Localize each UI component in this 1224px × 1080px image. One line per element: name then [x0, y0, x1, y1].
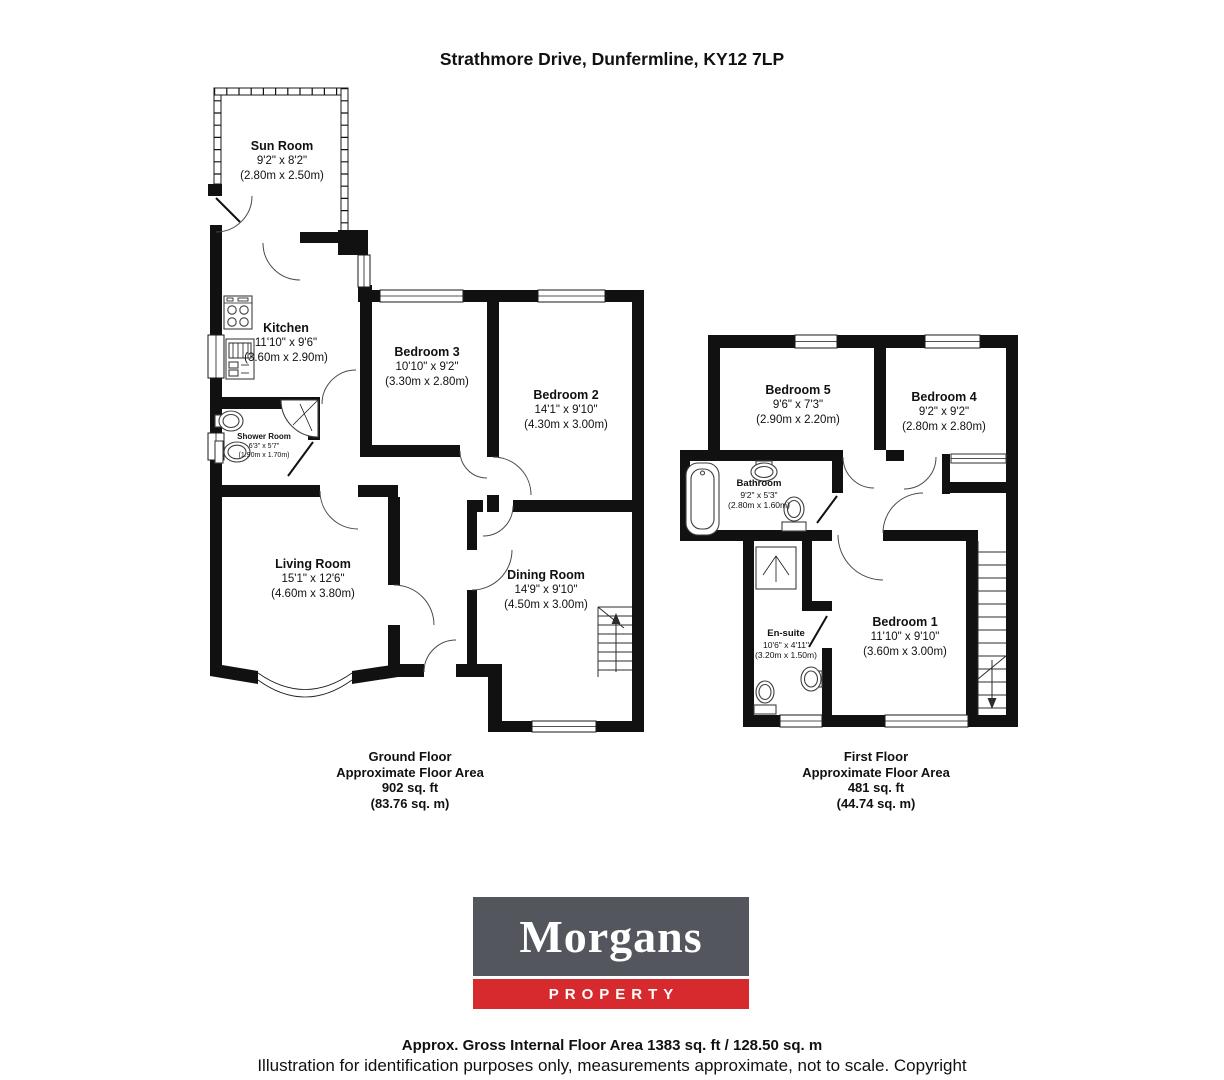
room-label-bedroom-3: Bedroom 3 10'10" x 9'2" (3.30m x 2.80m): [385, 345, 469, 389]
closet-icon: [951, 454, 1006, 463]
morgans-logo-brand: Morgans: [519, 910, 702, 963]
morgans-logo-tagline-bar: PROPERTY: [473, 979, 749, 1009]
stairs-up-icon: [598, 607, 632, 677]
morgans-logo: Morgans: [473, 897, 749, 976]
room-label-bedroom-2: Bedroom 2 14'1" x 9'10" (4.30m x 3.00m): [524, 388, 608, 432]
ensuite-sink-icon: [801, 667, 822, 691]
gross-area-text: Approx. Gross Internal Floor Area 1383 s…: [402, 1037, 822, 1054]
room-label-bedroom-1: Bedroom 1 11'10" x 9'10" (3.60m x 3.00m): [863, 615, 947, 659]
ensuite-toilet-icon: [754, 681, 776, 714]
room-label-dining-room: Dining Room 14'9" x 9'10" (4.50m x 3.00m…: [504, 568, 588, 612]
ground-floor-caption: Ground Floor Approximate Floor Area 902 …: [336, 749, 484, 811]
room-label-bathroom: Bathroom 9'2" x 5'3" (2.80m x 1.60m): [728, 478, 790, 511]
bath-icon: [686, 463, 719, 535]
stairs-down-icon: [978, 541, 1006, 715]
room-label-bedroom-5: Bedroom 5 9'6" x 7'3" (2.90m x 2.20m): [756, 383, 840, 427]
room-label-bedroom-4: Bedroom 4 9'2" x 9'2" (2.80m x 2.80m): [902, 390, 986, 434]
morgans-logo-tagline: PROPERTY: [543, 986, 680, 1003]
room-label-kitchen: Kitchen 11'10" x 9'6" (3.60m x 2.90m): [244, 321, 328, 365]
page-title: Strathmore Drive, Dunfermline, KY12 7LP: [440, 49, 784, 71]
room-label-sun-room: Sun Room 9'2" x 8'2" (2.80m x 2.50m): [240, 139, 324, 183]
room-label-en-suite: En-suite 10'6" x 4'11" (3.20m x 1.50m): [755, 628, 817, 661]
bay-window: [258, 673, 352, 697]
room-label-shower-room: Shower Room 6'3" x 5'7" (1.90m x 1.70m): [237, 432, 291, 460]
floorplan-page: Strathmore Drive, Dunfermline, KY12 7LP: [0, 0, 1224, 1080]
ensuite-shower-icon: [756, 547, 796, 589]
first-floor-caption: First Floor Approximate Floor Area 481 s…: [802, 749, 950, 811]
room-label-living-room: Living Room 15'1" x 12'6" (4.60m x 3.80m…: [271, 557, 355, 601]
disclaimer-text: Illustration for identification purposes…: [257, 1056, 966, 1076]
